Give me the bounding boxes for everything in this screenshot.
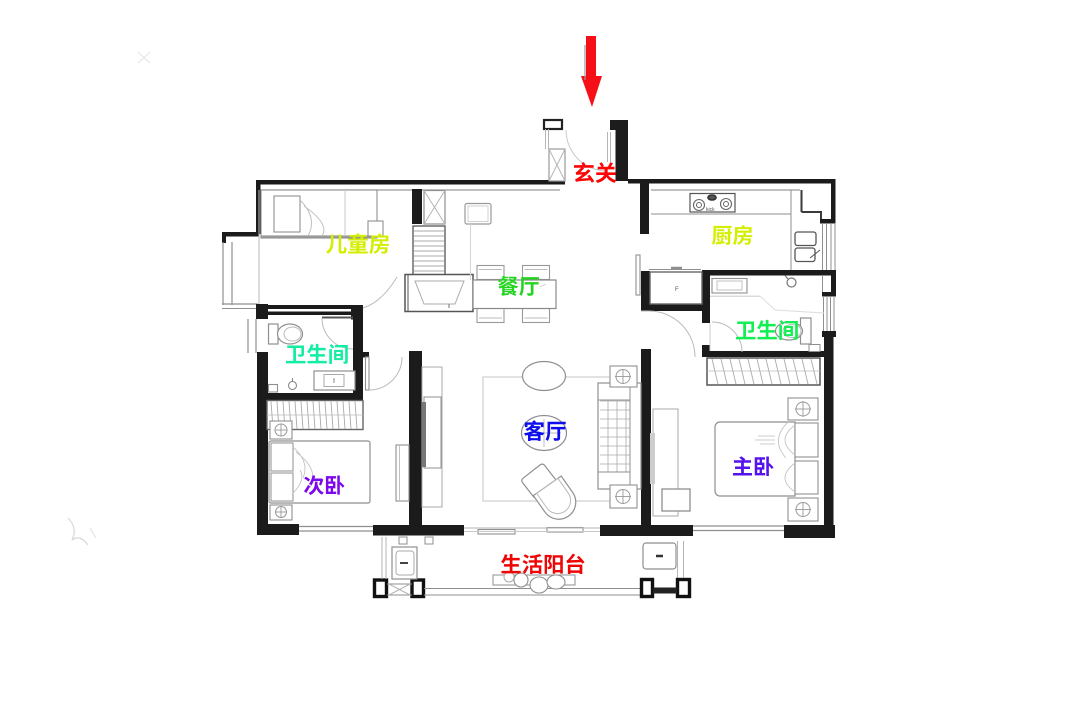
svg-text:F: F	[675, 287, 679, 293]
svg-text:kick: kick	[706, 207, 715, 213]
